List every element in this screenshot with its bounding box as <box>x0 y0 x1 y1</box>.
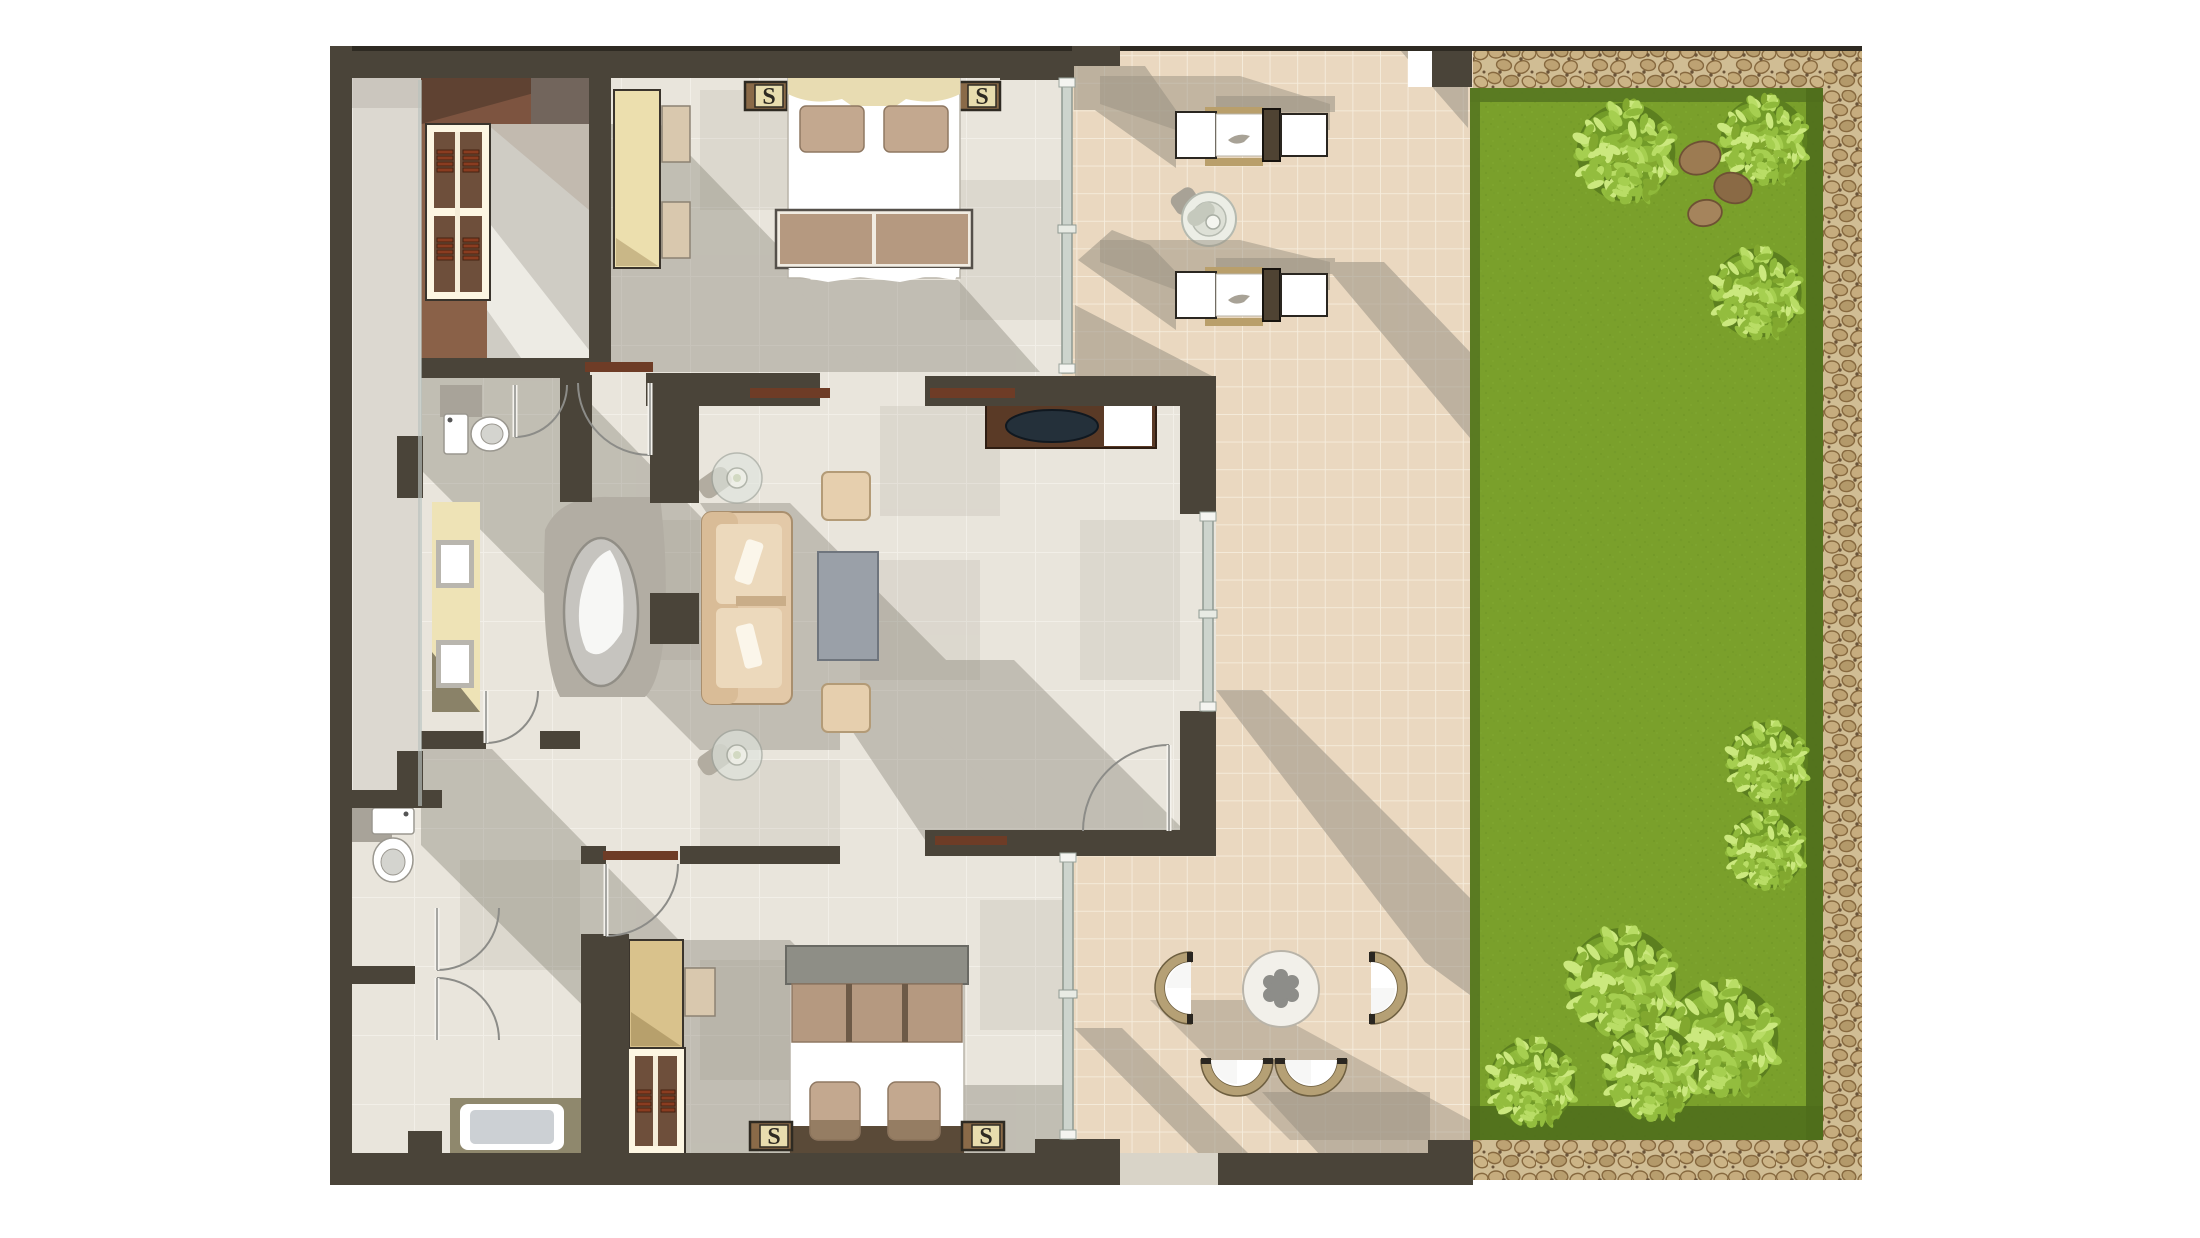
svg-text:S: S <box>975 84 988 110</box>
svg-text:S: S <box>767 1124 780 1150</box>
svg-text:S: S <box>979 1124 992 1150</box>
svg-text:S: S <box>762 84 775 110</box>
